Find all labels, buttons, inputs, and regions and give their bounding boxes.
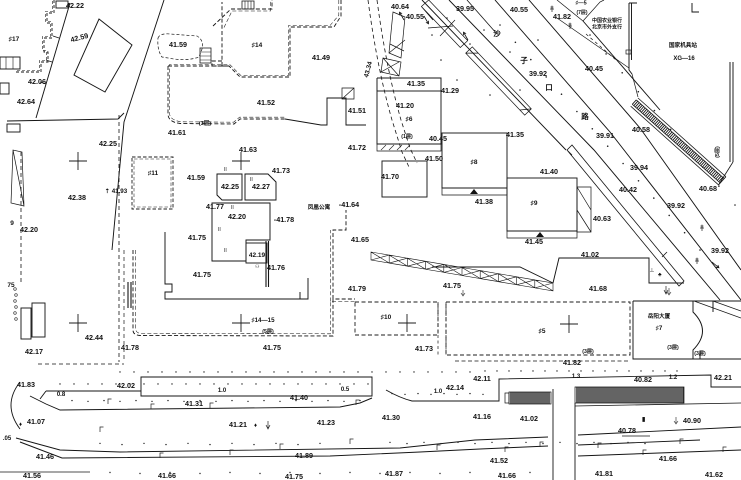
- svg-text:41.66: 41.66: [498, 471, 516, 480]
- svg-text:41.59: 41.59: [169, 40, 187, 49]
- svg-text:41.50: 41.50: [425, 154, 443, 163]
- svg-text:41.83: 41.83: [17, 380, 35, 389]
- svg-text:41.61: 41.61: [168, 128, 186, 137]
- svg-text:♯7: ♯7: [656, 325, 663, 332]
- svg-text:♯11: ♯11: [148, 170, 159, 177]
- svg-text:41.40: 41.40: [290, 393, 308, 402]
- svg-text:41.46: 41.46: [36, 452, 54, 461]
- svg-text:41.72: 41.72: [348, 143, 366, 152]
- svg-text:42.14: 42.14: [446, 383, 464, 392]
- svg-text:41.75: 41.75: [443, 281, 461, 290]
- svg-text:岳阳大厦: 岳阳大厦: [648, 312, 671, 320]
- svg-text:39.95: 39.95: [456, 4, 474, 13]
- svg-text:41.40: 41.40: [540, 167, 558, 176]
- svg-text:41.65: 41.65: [351, 235, 369, 244]
- svg-text:41.20: 41.20: [396, 101, 414, 110]
- svg-text:41.30: 41.30: [382, 413, 400, 422]
- svg-text:41.38: 41.38: [475, 197, 493, 206]
- svg-text:国家机具站: 国家机具站: [669, 41, 697, 49]
- svg-text:42.21: 42.21: [714, 373, 732, 382]
- svg-text:(5层): (5层): [713, 146, 721, 158]
- svg-text:42.20: 42.20: [20, 225, 38, 234]
- svg-text:II: II: [224, 167, 227, 173]
- svg-text:-41.64: -41.64: [339, 200, 359, 209]
- svg-text:42.25: 42.25: [221, 182, 239, 191]
- svg-text:♯17: ♯17: [9, 36, 20, 43]
- svg-text:口: 口: [545, 83, 553, 92]
- svg-text:41.52: 41.52: [257, 98, 275, 107]
- svg-text:(7层): (7层): [576, 9, 587, 16]
- svg-text:(3层): (3层): [694, 349, 706, 357]
- svg-text:41.75: 41.75: [263, 343, 281, 352]
- svg-text:40.68: 40.68: [699, 184, 717, 193]
- svg-text:41.02: 41.02: [581, 250, 599, 259]
- svg-text:41.78: 41.78: [121, 343, 139, 352]
- svg-text:(3层): (3层): [199, 119, 211, 127]
- svg-text:41.82: 41.82: [553, 12, 571, 21]
- svg-text:41.73: 41.73: [272, 166, 290, 175]
- svg-text:北京市外支行: 北京市外支行: [592, 24, 622, 31]
- svg-text:40.78: 40.78: [618, 426, 636, 435]
- svg-text:42.17: 42.17: [25, 347, 43, 356]
- svg-text:39.94: 39.94: [630, 163, 648, 172]
- svg-text:41.73: 41.73: [415, 344, 433, 353]
- svg-text:41.87: 41.87: [385, 469, 403, 478]
- svg-text:41.21: 41.21: [229, 420, 247, 429]
- svg-text:子: 子: [520, 56, 528, 65]
- svg-text:41.89: 41.89: [295, 451, 313, 460]
- svg-text:42.02: 42.02: [117, 381, 135, 390]
- svg-text:40.42: 40.42: [619, 185, 637, 194]
- svg-text:♦: ♦: [254, 423, 257, 429]
- svg-text:♦: ♦: [19, 422, 22, 428]
- svg-text:41.81: 41.81: [595, 469, 613, 478]
- svg-text:♯14: ♯14: [252, 42, 263, 49]
- svg-text:II: II: [218, 227, 221, 233]
- svg-text:40.45: 40.45: [429, 134, 447, 143]
- svg-text:41.02: 41.02: [520, 414, 538, 423]
- svg-text:.05: .05: [3, 436, 12, 442]
- svg-text:42.11: 42.11: [473, 374, 491, 383]
- svg-text:42.27: 42.27: [252, 182, 270, 191]
- svg-text:▮: ▮: [642, 417, 645, 423]
- svg-text:(5层): (5层): [262, 327, 274, 335]
- svg-text:41.56: 41.56: [23, 471, 41, 480]
- svg-text:♯6: ♯6: [406, 116, 413, 123]
- svg-text:42.44: 42.44: [85, 333, 103, 342]
- svg-text:39.92: 39.92: [711, 246, 729, 255]
- svg-text:II: II: [231, 205, 234, 211]
- svg-text:41.63: 41.63: [239, 145, 257, 154]
- svg-text:41.31: 41.31: [185, 399, 203, 408]
- svg-text:沙: 沙: [493, 29, 501, 38]
- svg-text:41.45: 41.45: [525, 237, 543, 246]
- svg-text:II: II: [224, 248, 227, 254]
- svg-text:40.45: 40.45: [585, 64, 603, 73]
- svg-text:41.82: 41.82: [563, 358, 581, 367]
- svg-text:0.8: 0.8: [57, 392, 66, 398]
- svg-text:41.77: 41.77: [206, 202, 224, 211]
- svg-text:41.66: 41.66: [158, 471, 176, 480]
- svg-text:41.75: 41.75: [193, 270, 211, 279]
- svg-text:中国农业银行: 中国农业银行: [592, 17, 622, 24]
- svg-text:75: 75: [7, 282, 15, 289]
- svg-text:41.16: 41.16: [473, 412, 491, 421]
- svg-text:路: 路: [581, 111, 589, 121]
- svg-text:41.51: 41.51: [348, 106, 366, 115]
- svg-text:41.76: 41.76: [267, 263, 285, 272]
- svg-text:41.70: 41.70: [381, 172, 399, 181]
- svg-text:41.68: 41.68: [589, 284, 607, 293]
- svg-text:39.91: 39.91: [596, 131, 614, 140]
- svg-text:40.90: 40.90: [683, 416, 701, 425]
- svg-text:41.07: 41.07: [27, 417, 45, 426]
- svg-text:(3层): (3层): [667, 343, 679, 351]
- svg-text:1.0: 1.0: [434, 389, 443, 395]
- svg-text:II: II: [250, 177, 253, 183]
- svg-text:1.3: 1.3: [572, 374, 581, 380]
- svg-text:凤凰公寓: 凤凰公寓: [308, 203, 331, 211]
- svg-text:39.92: 39.92: [529, 69, 547, 78]
- svg-text:42.64: 42.64: [17, 97, 35, 106]
- svg-text:41.29: 41.29: [441, 86, 459, 95]
- svg-text:♯14—15: ♯14—15: [251, 317, 275, 324]
- svg-text:XG—16: XG—16: [673, 56, 695, 62]
- svg-text:1.0: 1.0: [218, 388, 227, 394]
- svg-text:42.19: 42.19: [249, 252, 266, 259]
- svg-text:-41.78: -41.78: [274, 215, 294, 224]
- svg-text:40.63: 40.63: [593, 214, 611, 223]
- svg-text:40.64: 40.64: [391, 2, 409, 11]
- svg-text:┴: ┴: [649, 268, 654, 275]
- svg-text:♯8: ♯8: [471, 159, 478, 166]
- svg-text:1.2: 1.2: [669, 375, 678, 381]
- svg-text:42.06: 42.06: [28, 77, 46, 86]
- svg-text:40.55: 40.55: [406, 12, 424, 21]
- svg-text:40.58: 40.58: [632, 125, 650, 134]
- svg-text:41.52: 41.52: [490, 456, 508, 465]
- svg-text:♯5: ♯5: [539, 328, 546, 335]
- svg-text:42.25: 42.25: [99, 139, 117, 148]
- svg-text:⇡ 41.93: ⇡ 41.93: [105, 188, 128, 195]
- svg-text:♯10: ♯10: [381, 314, 392, 321]
- svg-text:41.79: 41.79: [348, 284, 366, 293]
- svg-text:41.62: 41.62: [705, 470, 723, 479]
- svg-text:41.75: 41.75: [188, 233, 206, 242]
- svg-text:41.59: 41.59: [187, 173, 205, 182]
- svg-text:42.38: 42.38: [68, 193, 86, 202]
- svg-text:41.35: 41.35: [407, 79, 425, 88]
- svg-text:9: 9: [10, 220, 14, 227]
- svg-text:♯—5: ♯—5: [575, 1, 586, 7]
- svg-text:40.55: 40.55: [510, 5, 528, 14]
- svg-text:41.23: 41.23: [317, 418, 335, 427]
- svg-text:(1层): (1层): [401, 132, 413, 140]
- svg-text:41.66: 41.66: [659, 454, 677, 463]
- svg-text:42.20: 42.20: [228, 212, 246, 221]
- svg-text:42.22: 42.22: [66, 1, 84, 10]
- svg-text:♯9: ♯9: [531, 200, 538, 207]
- svg-text:39.92: 39.92: [667, 201, 685, 210]
- svg-text:♣: ♣: [658, 272, 662, 278]
- svg-text:(3层): (3层): [582, 347, 594, 355]
- svg-text:⚇: ⚇: [255, 264, 260, 270]
- svg-text:40.82: 40.82: [634, 375, 652, 384]
- svg-text:0.5: 0.5: [341, 387, 350, 393]
- svg-text:41.75: 41.75: [285, 472, 303, 480]
- svg-text:41.35: 41.35: [506, 130, 524, 139]
- svg-text:41.49: 41.49: [312, 53, 330, 62]
